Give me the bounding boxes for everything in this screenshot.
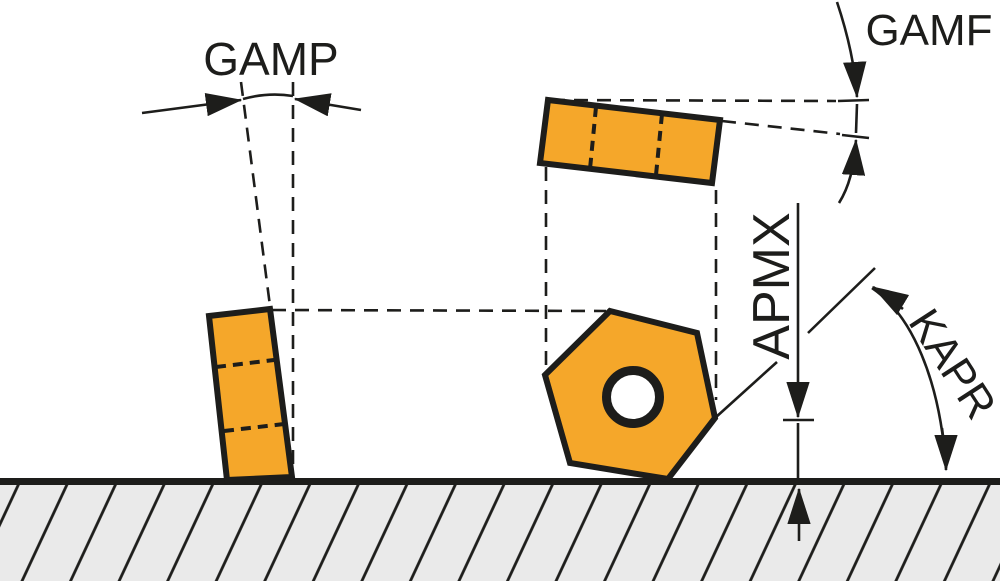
projection-line-horizontal-side-to-front: [272, 310, 606, 311]
gamf-tick-lower: [842, 135, 869, 138]
kapr-label: KAPR: [899, 301, 1000, 428]
gamf-tick-upper: [838, 100, 869, 101]
insert-top-view-body: [540, 100, 720, 183]
gamf-arc-upper: [837, 2, 857, 97]
ground-surface: [0, 478, 1000, 581]
insert-center-hole: [607, 371, 660, 424]
gamp-label: GAMP: [203, 33, 338, 85]
insert-front-view: [545, 311, 715, 479]
gamf-arc-middle: [856, 104, 857, 133]
projection-line-gamf-horizontal: [551, 100, 836, 101]
gamp-dimension: [142, 95, 361, 113]
apmx-label: APMX: [743, 212, 801, 359]
diagram-canvas: GAMP GAMF APMX KAPR: [0, 0, 1000, 581]
tool-geometry-diagram: GAMP GAMF APMX KAPR: [0, 0, 1000, 581]
gamp-leader-left: [142, 100, 241, 113]
ground-top-edge-line: [0, 478, 1000, 485]
insert-side-view: [209, 309, 292, 480]
insert-side-view-body: [209, 309, 292, 480]
insert-top-view: [540, 100, 720, 183]
ground-hatch-pattern: [0, 482, 1000, 581]
projection-line-gamp-tilted-edge-extension: [241, 82, 270, 306]
gamf-dimension: [837, 2, 869, 203]
kapr-cutting-edge-line-1: [715, 362, 777, 418]
kapr-cutting-edge-line-2: [808, 268, 875, 333]
gamp-arc: [243, 95, 293, 99]
gamf-label: GAMF: [865, 6, 992, 55]
gamf-arc-lower: [839, 140, 856, 203]
kapr-arc-upper-arrow: [873, 287, 903, 309]
kapr-arc-lower-arrow: [942, 428, 946, 470]
gamp-leader-right: [295, 99, 361, 110]
projection-line-gamf-tilted-edge-extension: [722, 121, 840, 134]
